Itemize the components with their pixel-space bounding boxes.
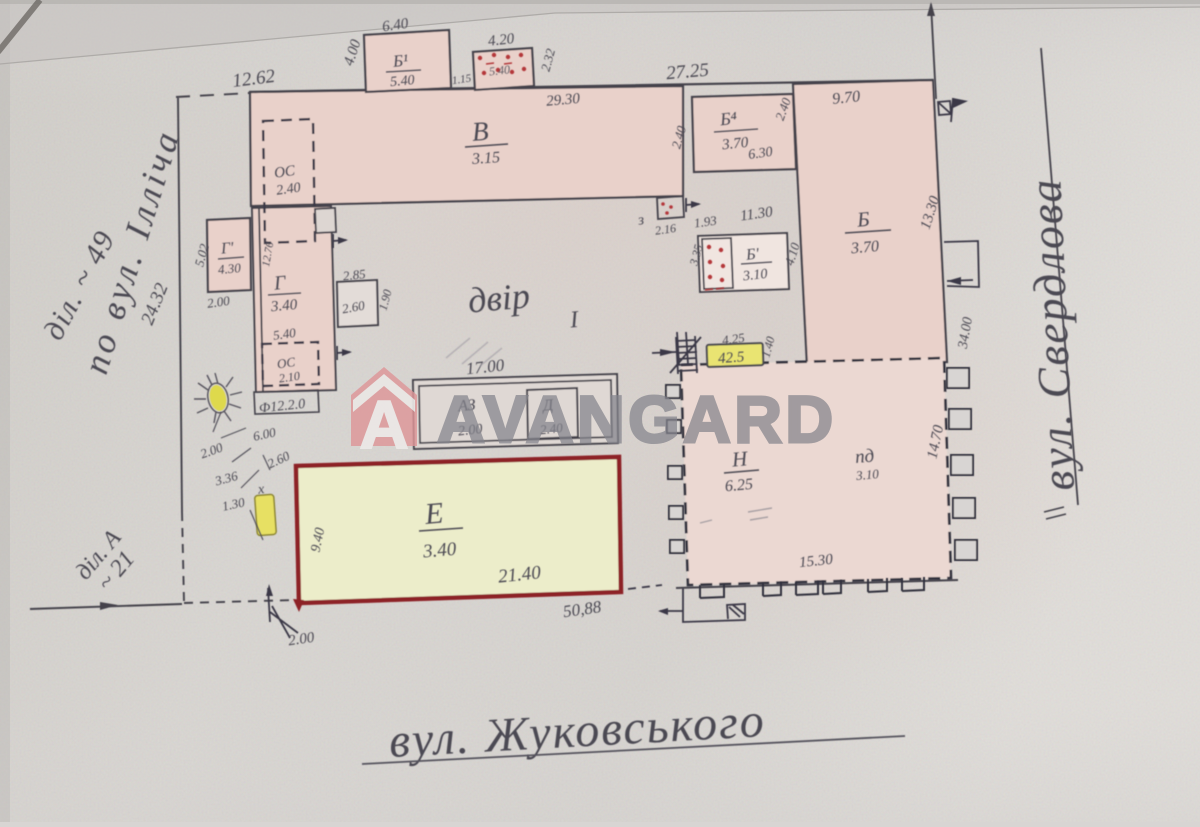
svg-text:двір: двір [466, 275, 531, 320]
svg-text:пд: пд [854, 445, 875, 468]
svg-text:5.40: 5.40 [488, 62, 510, 78]
svg-text:27.25: 27.25 [665, 60, 709, 85]
svg-text:3.10: 3.10 [854, 466, 879, 483]
svg-text:4.30: 4.30 [217, 260, 241, 277]
svg-text:В: В [471, 116, 490, 147]
svg-text:3.15: 3.15 [470, 149, 500, 168]
svg-text:Б¹: Б¹ [391, 51, 409, 71]
svg-text:Г': Г' [219, 240, 235, 258]
svg-text:21.40: 21.40 [497, 562, 542, 587]
svg-text:4.25: 4.25 [721, 330, 746, 348]
svg-text:AVANGARD: AVANGARD [437, 382, 837, 456]
svg-text:A: A [359, 387, 408, 463]
svg-text:3.70: 3.70 [849, 238, 879, 257]
svg-text:2.10: 2.10 [278, 369, 301, 386]
svg-text:6.25: 6.25 [724, 476, 753, 495]
svg-text:3.40: 3.40 [421, 539, 457, 563]
svg-text:3.70: 3.70 [720, 135, 749, 154]
svg-text:42.5: 42.5 [718, 349, 746, 367]
svg-text:Б': Б' [744, 246, 760, 264]
svg-text:17.00: 17.00 [465, 355, 506, 378]
svg-text:ОС: ОС [273, 163, 297, 182]
svg-text:2.85: 2.85 [342, 266, 367, 283]
svg-text:9.70: 9.70 [831, 88, 861, 108]
svg-text:5.40: 5.40 [390, 73, 416, 90]
svg-text:Б⁴: Б⁴ [718, 108, 738, 130]
svg-text:4.20: 4.20 [487, 31, 515, 50]
svg-text:2.16: 2.16 [654, 221, 677, 238]
svg-text:1.93: 1.93 [693, 213, 718, 231]
svg-text:29.30: 29.30 [546, 91, 582, 110]
svg-text:3.10: 3.10 [741, 267, 768, 285]
svg-text:3.40: 3.40 [269, 297, 298, 315]
svg-text:2.00: 2.00 [206, 293, 231, 311]
svg-text:Е: Е [423, 497, 445, 532]
svg-text:Б: Б [855, 207, 870, 232]
svg-text:5.40: 5.40 [272, 325, 297, 343]
